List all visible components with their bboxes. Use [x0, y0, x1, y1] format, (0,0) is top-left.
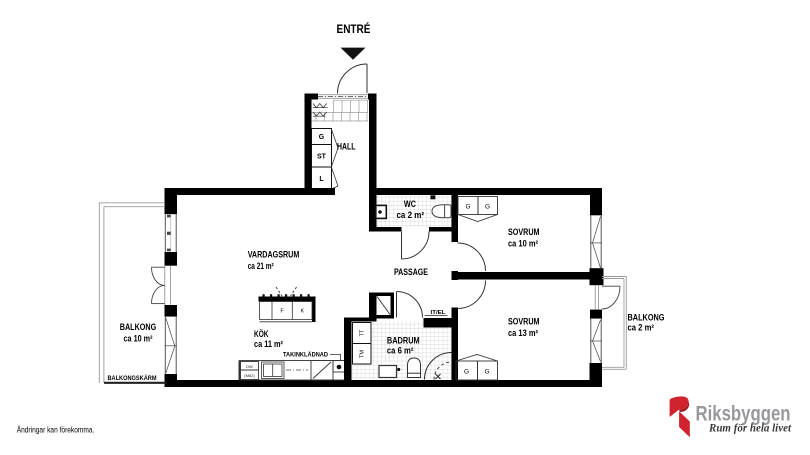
- svg-text:ENTRÉ: ENTRÉ: [337, 23, 371, 36]
- svg-text:ca 11 m²: ca 11 m²: [254, 339, 283, 349]
- svg-text:VARDAGSRUM: VARDAGSRUM: [248, 249, 300, 260]
- svg-text:Rum för hela livet: Rum för hela livet: [708, 423, 792, 435]
- svg-text:TT: TT: [360, 329, 366, 336]
- svg-text:HALL: HALL: [337, 142, 356, 153]
- svg-text:(M62): (M62): [244, 373, 255, 378]
- svg-text:ca 10 m²: ca 10 m²: [508, 239, 538, 249]
- svg-text:WC: WC: [404, 199, 416, 209]
- svg-text:ca 2 m²: ca 2 m²: [628, 323, 655, 333]
- svg-text:L: L: [319, 176, 324, 183]
- svg-text:G: G: [484, 369, 489, 376]
- svg-text:ca 10 m²: ca 10 m²: [124, 334, 153, 344]
- svg-text:G: G: [319, 134, 325, 141]
- svg-text:SOVRUM: SOVRUM: [508, 227, 540, 238]
- svg-text:DW: DW: [246, 364, 253, 369]
- svg-text:ca 2 m²: ca 2 m²: [397, 210, 425, 220]
- svg-text:Ändringar kan förekomma.: Ändringar kan förekomma.: [17, 425, 95, 435]
- svg-text:ca 13 m²: ca 13 m²: [508, 328, 538, 338]
- svg-text:BALKONGSKÄRM: BALKONGSKÄRM: [108, 374, 157, 382]
- svg-text:SOVRUM: SOVRUM: [508, 317, 540, 328]
- svg-text:K: K: [300, 309, 304, 315]
- svg-text:G: G: [464, 369, 469, 376]
- svg-text:TM: TM: [360, 350, 366, 358]
- svg-text:BALKONG: BALKONG: [120, 322, 157, 333]
- svg-text:ca 21 m²: ca 21 m²: [248, 261, 274, 271]
- svg-text:TAKINKLÄDNAD: TAKINKLÄDNAD: [283, 351, 328, 359]
- svg-text:G: G: [465, 204, 470, 211]
- svg-text:ST: ST: [317, 154, 327, 161]
- svg-text:G: G: [485, 204, 490, 211]
- svg-text:ca 6 m²: ca 6 m²: [387, 345, 414, 355]
- svg-text:PASSAGE: PASSAGE: [394, 267, 428, 278]
